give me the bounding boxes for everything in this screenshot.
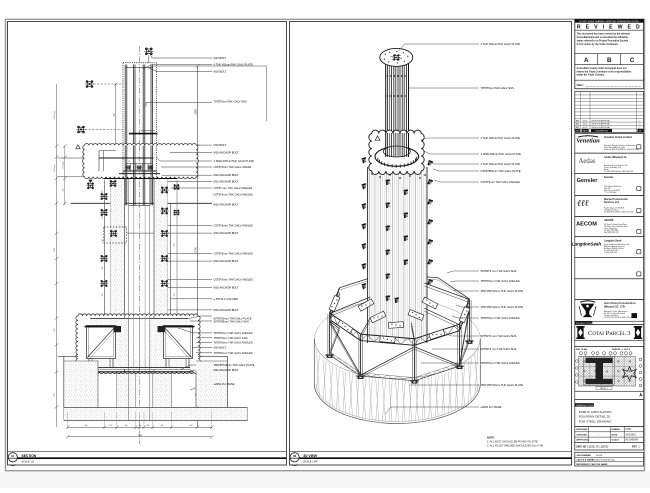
svg-text:SECTION: SECTION: [22, 454, 37, 458]
svg-text:300: 300: [102, 216, 104, 219]
svg-text:Tel: (853) 2875 0000 Fax: (85: Tel: (853) 2875 0000 Fax: (853) 2875 000…: [604, 317, 634, 319]
svg-text:PUBLIC CIRCULATION: PUBLIC CIRCULATION: [579, 410, 612, 414]
svg-text:Tel: (853) 2871 3336 Fax: (85: Tel: (853) 2871 3336 Fax: (853) 2871 333…: [604, 211, 634, 213]
svg-text:SCALE 1:5: SCALE 1:5: [22, 461, 35, 464]
svg-text:Gensler: Gensler: [577, 178, 599, 184]
svg-text:4 THK 450mmTHK GALV PLATE: 4 THK 450mmTHK GALV PLATE: [481, 162, 521, 166]
svg-text:REFERENCE CAD FILE NAME: REFERENCE CAD FILE NAME: [576, 463, 608, 466]
svg-text:C0T8T6mm THK GALV ANGLES: C0T8T6mm THK GALV ANGLES: [214, 223, 254, 227]
svg-text:relieve the Trade Contractor o: relieve the Trade Contractor of its resp…: [577, 70, 633, 73]
svg-text:T8T8T6mm THK GALV SHS: T8T8T6mm THK GALV SHS: [214, 336, 248, 340]
svg-text:M16 ANCHOR BOLT: M16 ANCHOR BOLT: [214, 150, 239, 154]
svg-text:02: 02: [293, 454, 297, 458]
svg-text:A: A: [584, 57, 589, 64]
svg-text:AECOM: AECOM: [576, 221, 597, 227]
svg-text:M16 ANCHOR BOLT: M16 ANCHOR BOLT: [214, 286, 239, 290]
svg-text:4 THK 450mmTHK GALV PLATE: 4 THK 450mmTHK GALV PLATE: [481, 42, 521, 46]
svg-text:1. ALL BOLT SHOULD BE FIXING O: 1. ALL BOLT SHOULD BE FIXING ON SITE.: [487, 439, 539, 443]
svg-text:(Macau) CO. LTD.: (Macau) CO. LTD.: [604, 304, 626, 308]
svg-text:This document has been revised: This document has been revised by the re…: [577, 33, 630, 36]
svg-text:C: C: [630, 57, 635, 64]
svg-text:50T8T85mm THK GALV SHS: 50T8T85mm THK GALV SHS: [214, 320, 250, 324]
svg-text:300: 300: [102, 267, 104, 270]
svg-text:4 SIDE 450mmTHK GALV PLATE: 4 SIDE 450mmTHK GALV PLATE: [214, 159, 255, 163]
svg-text:Venetian Orient Limited: Venetian Orient Limited: [604, 136, 632, 139]
svg-text:4 THK 450mmTHK GALV PLATE: 4 THK 450mmTHK GALV PLATE: [481, 136, 521, 140]
svg-text:50T50T6 mm THK GALV.SHS: 50T50T6 mm THK GALV.SHS: [481, 334, 517, 338]
svg-text:Consultant(s)(s) and is accord: Consultant(s)(s) and is accorded the fol…: [577, 36, 629, 39]
svg-text:600: 600: [85, 425, 88, 427]
svg-text:150T150T10mm THK GALV PLATE: 150T150T10mm THK GALV PLATE: [481, 305, 524, 309]
svg-text:5.4 for action by the Trade Co: 5.4 for action by the Trade Contractor.: [577, 43, 619, 46]
svg-text:300 (typ): 300 (typ): [53, 164, 56, 172]
svg-text:DATE: DATE: [583, 130, 588, 133]
svg-text:M16 ANCHOR BOLT: M16 ANCHOR BOLT: [214, 202, 239, 206]
svg-text:AECOM: AECOM: [604, 219, 613, 222]
svg-text:300: 300: [102, 240, 104, 243]
svg-text:600: 600: [190, 425, 193, 427]
svg-text:14/1/2015: 14/1/2015: [626, 434, 637, 436]
svg-text:4/1/15: 4/1/15: [583, 127, 588, 129]
svg-text:50: 50: [128, 161, 130, 163]
svg-text:300: 300: [174, 294, 176, 297]
svg-text:4/1/15: 4/1/15: [583, 124, 588, 126]
svg-text:51528: 51528: [596, 455, 603, 457]
svg-text:Telephone: (853) 8118 2888 Fa: Telephone: (853) 8118 2888 Fax: (853) 81…: [604, 149, 638, 151]
svg-text:Tel: (852) 3922 9000: Tel: (852) 3922 9000: [604, 230, 618, 232]
svg-text:Aedas: Aedas: [579, 158, 596, 165]
svg-text:ISSUE FOR APPROVAL: ISSUE FOR APPROVAL: [592, 123, 611, 126]
svg-text:1365: 1365: [195, 109, 198, 115]
svg-text:M16 BOLT: M16 BOLT: [214, 346, 227, 350]
svg-text:2700: 2700: [195, 247, 198, 253]
svg-text:750: 750: [54, 328, 56, 331]
svg-text:150T80T16mm THK GALV PLATE: 150T80T16mm THK GALV PLATE: [214, 363, 255, 367]
svg-text:5152B_FD_B5030: 5152B_FD_B5030: [587, 444, 609, 448]
svg-text:Macau: Macau: [604, 169, 609, 171]
svg-text:4 SIDE 450mmTHK GALV PLATE: 4 SIDE 450mmTHK GALV PLATE: [481, 152, 522, 156]
svg-text:KEY PLAN: KEY PLAN: [576, 348, 587, 351]
svg-text:T8T8T6mm THK GALV ANGLES: T8T8T6mm THK GALV ANGLES: [214, 341, 253, 345]
svg-text:150: 150: [109, 425, 112, 427]
svg-text:T8T8T6mmTHK GALV SHS: T8T8T6mmTHK GALV SHS: [481, 86, 514, 90]
svg-text:T8T8T6mm THK GALV ANGLES: T8T8T6mm THK GALV ANGLES: [481, 316, 520, 320]
svg-text:DESCRIPTION: DESCRIPTION: [595, 131, 608, 133]
svg-text:M16 ANCHOR BOLT: M16 ANCHOR BOLT: [214, 259, 239, 263]
svg-text:ℓℓℓ: ℓℓℓ: [577, 198, 589, 208]
svg-text:F: (853) 2833 1532: F: (853) 2833 1532: [604, 252, 617, 254]
svg-text:DRAWN: DRAWN: [612, 428, 621, 431]
svg-text:⌀ 550 R.C COLUMN: ⌀ 550 R.C COLUMN: [214, 297, 239, 301]
svg-text:4 THK 450mmTHK GALV PLATE: 4 THK 450mmTHK GALV PLATE: [214, 63, 254, 67]
svg-text:⌀2060 R.C BASE: ⌀2060 R.C BASE: [214, 382, 235, 386]
svg-text:PARCEL 2: PARCEL 2: [600, 387, 608, 390]
svg-text:450T150T16mm THK GALV PLATE: 450T150T16mm THK GALV PLATE: [481, 289, 524, 293]
svg-text:AS SHOWN: AS SHOWN: [626, 439, 639, 442]
svg-text:LangdonSeah: LangdonSeah: [572, 241, 601, 246]
svg-text:Services Ltd.: Services Ltd.: [604, 201, 620, 204]
svg-text:150: 150: [147, 425, 150, 427]
svg-text:B: B: [607, 57, 612, 64]
svg-text:DO NOT SCALE DRAWING. VERIFY A: DO NOT SCALE DRAWING. VERIFY ALL DIMENSI…: [579, 20, 639, 23]
svg-text:150T150T16mm THK GALV PLATE: 150T150T16mm THK GALV PLATE: [481, 383, 524, 387]
svg-text:3D VIEW: 3D VIEW: [303, 454, 317, 458]
svg-text:Cotai Parcel 3: Cotai Parcel 3: [588, 330, 631, 337]
svg-text:M16 ANCHOR BOLT: M16 ANCHOR BOLT: [214, 368, 239, 372]
svg-text:R E V I E W E D: R E V I E W E D: [577, 24, 642, 30]
svg-text:under the Trade Contract.: under the Trade Contract.: [577, 74, 606, 77]
svg-text:75: 75: [139, 425, 141, 427]
svg-text:DRAWING TITLE: DRAWING TITLE: [576, 404, 594, 407]
svg-text:Fax: (852) 3922 9797: Fax: (852) 3922 9797: [604, 232, 619, 234]
svg-text:C0T8T6mm THK GALV ANGLE: C0T8T6mm THK GALV ANGLE: [214, 165, 252, 169]
svg-text:C0T8T6mm THK GALV ANGLES: C0T8T6mm THK GALV ANGLES: [214, 278, 254, 282]
svg-text:DESIGNED: DESIGNED: [576, 429, 588, 431]
svg-text:Aedas (Macau) Ltd.: Aedas (Macau) Ltd.: [604, 156, 627, 159]
svg-text:T8T8T6mm THK GALV ANGLES: T8T8T6mm THK GALV ANGLES: [481, 279, 520, 283]
svg-text:Gensler: Gensler: [604, 176, 613, 179]
svg-text:Consultant review of this docu: Consultant review of this document does …: [577, 67, 627, 70]
svg-text:SCALE 1:NP: SCALE 1:NP: [303, 461, 318, 464]
svg-text:JOB NUMBER: JOB NUMBER: [576, 455, 591, 457]
svg-text:50T50T6 mm THK GALV.SHS: 50T50T6 mm THK GALV.SHS: [481, 347, 517, 351]
svg-text:150 (typ): 150 (typ): [62, 161, 65, 169]
svg-text:PARCEL 1, LOT 2: PARCEL 1, LOT 2: [612, 348, 631, 351]
svg-text:M16 ANCHOR BOLT: M16 ANCHOR BOLT: [214, 308, 239, 312]
svg-text:300: 300: [174, 244, 176, 247]
svg-text:M16 BOLT: M16 BOLT: [214, 56, 227, 60]
svg-text:SCALE: SCALE: [612, 439, 620, 442]
svg-text:T8T8T6mm THK GALV ANGLES: T8T8T6mm THK GALV ANGLES: [481, 361, 520, 365]
svg-text:Venetian: Venetian: [576, 138, 600, 145]
svg-text:⌀2060 R.C BASE: ⌀2060 R.C BASE: [481, 405, 502, 409]
svg-text:750: 750: [54, 393, 56, 396]
svg-text:4/1/15: 4/1/15: [583, 120, 588, 122]
svg-text:M16 ANCHOR BOLT: M16 ANCHOR BOLT: [214, 231, 239, 235]
svg-text:50T50T6 mm THK GALV.SHS: 50T50T6 mm THK GALV.SHS: [481, 269, 517, 273]
svg-text:APPROVED: APPROVED: [576, 439, 589, 442]
svg-text:CHIO: CHIO: [626, 429, 632, 431]
svg-text:T: 1.571.226.8000: T: 1.571.226.8000: [604, 192, 617, 194]
svg-text:C0T8T6mm THK GALV ANGLES: C0T8T6mm THK GALV ANGLES: [481, 180, 521, 184]
svg-text:T8T8T6mm THK GALV ANGLES: T8T8T6mm THK GALV ANGLES: [214, 351, 253, 355]
svg-text:M16 BOLT: M16 BOLT: [214, 69, 227, 73]
svg-text:T8T8T6mmTHK GALV SHS: T8T8T6mmTHK GALV SHS: [214, 99, 247, 103]
svg-text:T8T8T6mm THK GALV ANGLES: T8T8T6mm THK GALV ANGLES: [214, 331, 253, 335]
svg-text:5152B_FD_B5030.dwg: 5152B_FD_B5030.dwg: [592, 460, 615, 462]
svg-text:300: 300: [161, 425, 164, 427]
svg-text:Tel: (853) 2833 9100 Fax: (85: Tel: (853) 2833 9100 Fax: (853) 2833 911…: [604, 171, 633, 173]
svg-text:C0T8T mm THK GALV ANGLES: C0T8T mm THK GALV ANGLES: [214, 186, 253, 190]
svg-text:CHECKED: CHECKED: [576, 434, 587, 436]
svg-text:2. ALL FILLET WELDED SHOULD BE: 2. ALL FILLET WELDED SHOULD BE 6mm THK.: [487, 443, 544, 447]
svg-text:C0T8T6mm THK GALV ANGLES: C0T8T6mm THK GALV ANGLES: [214, 252, 254, 256]
svg-text:DWG NO: DWG NO: [576, 445, 586, 448]
svg-text:FOR STEEL DRAWING: FOR STEEL DRAWING: [579, 419, 612, 423]
svg-text:C: C: [639, 444, 641, 448]
svg-text:ISSUE FOR APPROVAL: ISSUE FOR APPROVAL: [592, 119, 611, 122]
svg-text:300: 300: [174, 214, 176, 217]
svg-text:444: 444: [125, 425, 128, 427]
svg-text:Langdon Seah: Langdon Seah: [604, 239, 622, 242]
svg-text:Tel: (853) 2833 1710: Tel: (853) 2833 1710: [604, 250, 618, 252]
svg-text:M16 ANCHOR BOLT: M16 ANCHOR BOLT: [214, 180, 239, 184]
svg-text:300: 300: [63, 188, 65, 191]
svg-text:NOTE:: NOTE:: [487, 436, 495, 440]
svg-text:1365 (typ): 1365 (typ): [53, 110, 56, 119]
svg-text:300: 300: [102, 294, 104, 297]
svg-text:FOUNTAIN DETAIL 25: FOUNTAIN DETAIL 25: [579, 415, 611, 419]
svg-text:status referred to in Project: status referred to in Project Procedure …: [577, 39, 629, 42]
svg-text:REV: REV: [632, 445, 637, 448]
svg-text:ISSUE FOR APPROVAL: ISSUE FOR APPROVAL: [592, 126, 611, 129]
svg-text:C0T8T6mm THK GALV ANGLES: C0T8T6mm THK GALV ANGLES: [214, 193, 254, 197]
svg-text:China Law Building, 21/F: China Law Building, 21/F: [604, 167, 621, 169]
svg-text:M16 BOLT: M16 BOLT: [214, 143, 227, 147]
svg-text:C0T8T850mm THK GALV PLATE: C0T8T850mm THK GALV PLATE: [481, 169, 521, 173]
svg-text:2700: 2700: [54, 248, 56, 252]
svg-text:Date :: Date :: [577, 83, 585, 87]
svg-text:300: 300: [102, 191, 104, 194]
svg-text:M16 ANCHOR BOLT: M16 ANCHOR BOLT: [214, 173, 239, 177]
svg-text:01: 01: [11, 454, 15, 458]
svg-text:DATE: DATE: [612, 433, 618, 436]
